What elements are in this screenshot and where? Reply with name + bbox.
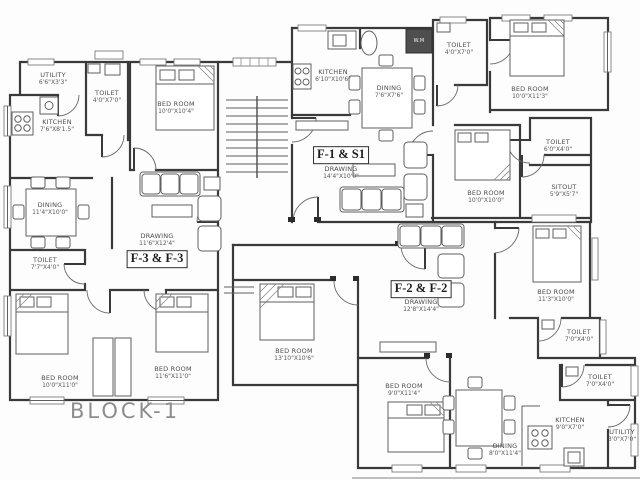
room-label-bedroom-f1-mid: BED ROOM10'0"X10'0"	[467, 189, 505, 205]
bed-f2-right	[533, 226, 581, 282]
wc-f1-toilet-top	[437, 23, 450, 32]
bed-f1-mid	[455, 130, 510, 180]
sink-left-kitchen	[40, 97, 58, 114]
room-label-toilet-f1-top: TOILET4'0"X7'0"	[445, 41, 473, 57]
room-label-bedroom-left-top: BED ROOM10'0"X10'4"	[157, 100, 195, 116]
walls-lobby	[218, 28, 292, 222]
bed-f2-mid	[260, 284, 314, 340]
room-label-dining-f1: DINING7'6"X7'6"	[375, 84, 403, 100]
bed-f1-right	[510, 20, 564, 76]
room-label-dining-left: DINING11'4"X10'0"	[32, 201, 68, 217]
room-label-bedroom-f1-right: BED ROOM10'0"X11'3"	[511, 85, 549, 101]
room-label-kitchen-left: KITCHEN7'6"X8'1.5"	[40, 118, 74, 134]
wardrobe-left-bedrooms	[93, 338, 131, 396]
washing-machine-label: W.M	[414, 38, 425, 44]
room-label-bedroom-left-bottom-1: BED ROOM10'0"X11'0"	[41, 374, 79, 390]
room-label-utility-left: UTILITY6'6"X3'3"	[39, 71, 67, 87]
room-label-utility-f2: UTILITY3'0"X7'0"	[608, 428, 636, 444]
stove-left-kitchen	[12, 112, 33, 135]
block-title: BLOCK-1	[70, 399, 180, 423]
room-label-toilet-f1-right: TOILET6'0"X4'0"	[544, 138, 572, 154]
room-label-toilet-f2-2: TOILET7'0"X4'0"	[586, 373, 614, 389]
bed-f2-bottom	[388, 402, 444, 452]
room-label-kitchen-f1: KITCHEN6'10"X10'6"	[315, 68, 351, 84]
room-label-bedroom-f2-right: BED ROOM11'3"X10'0"	[537, 288, 575, 304]
hall-label-f3: DRAWING11'6"X12'4"	[139, 232, 175, 248]
floorplan-canvas: UTILITY6'6"X3'3" TOILET4'0"X7'0" KITCHEN…	[0, 0, 640, 480]
hall-label-f1: DRAWING14'4"X10'0"	[323, 165, 359, 181]
stove-f2-kitchen	[528, 426, 552, 449]
unit-label-f3: F-3 & F-3	[127, 250, 188, 268]
sink-f2-kitchen	[564, 448, 584, 466]
room-label-toilet-left-mid: TOILET7'7"X4'0"	[31, 256, 59, 272]
room-label-bedroom-left-bottom-2: BED ROOM11'6"X11'0"	[154, 365, 192, 381]
wash-basin-f1	[361, 31, 377, 55]
room-label-bedroom-f2-bottom: BED ROOM9'0"X11'4"	[385, 382, 423, 398]
wardrobe-f2-corridor	[380, 342, 436, 352]
room-label-toilet-left-top: TOILET4'0"X7'0"	[93, 89, 121, 105]
unit-label-f2: F-2 & F-2	[391, 280, 452, 298]
room-label-kitchen-f2: KITCHEN9'0"X7'0"	[555, 416, 585, 432]
bed-left-bottom-2	[156, 294, 208, 352]
bed-left-bottom-1	[16, 294, 68, 354]
wc-left-toilet	[88, 64, 120, 75]
room-label-sitout: SITOUT5'9"X5'7"	[550, 183, 578, 199]
stove-f1-kitchen	[293, 64, 311, 89]
room-label-dining-f2: DINING8'0"X11'4"	[489, 442, 521, 458]
room-label-toilet-f2-1: TOILET7'0"X4'0"	[565, 328, 593, 344]
hall-label-f2: DRAWING12'8"X14'4"	[403, 298, 439, 314]
bed-left-top	[156, 66, 214, 130]
unit-label-f1: F-1 & S1	[313, 146, 369, 164]
room-label-bedroom-f2-mid: BED ROOM13'10"X10'6"	[274, 347, 314, 363]
